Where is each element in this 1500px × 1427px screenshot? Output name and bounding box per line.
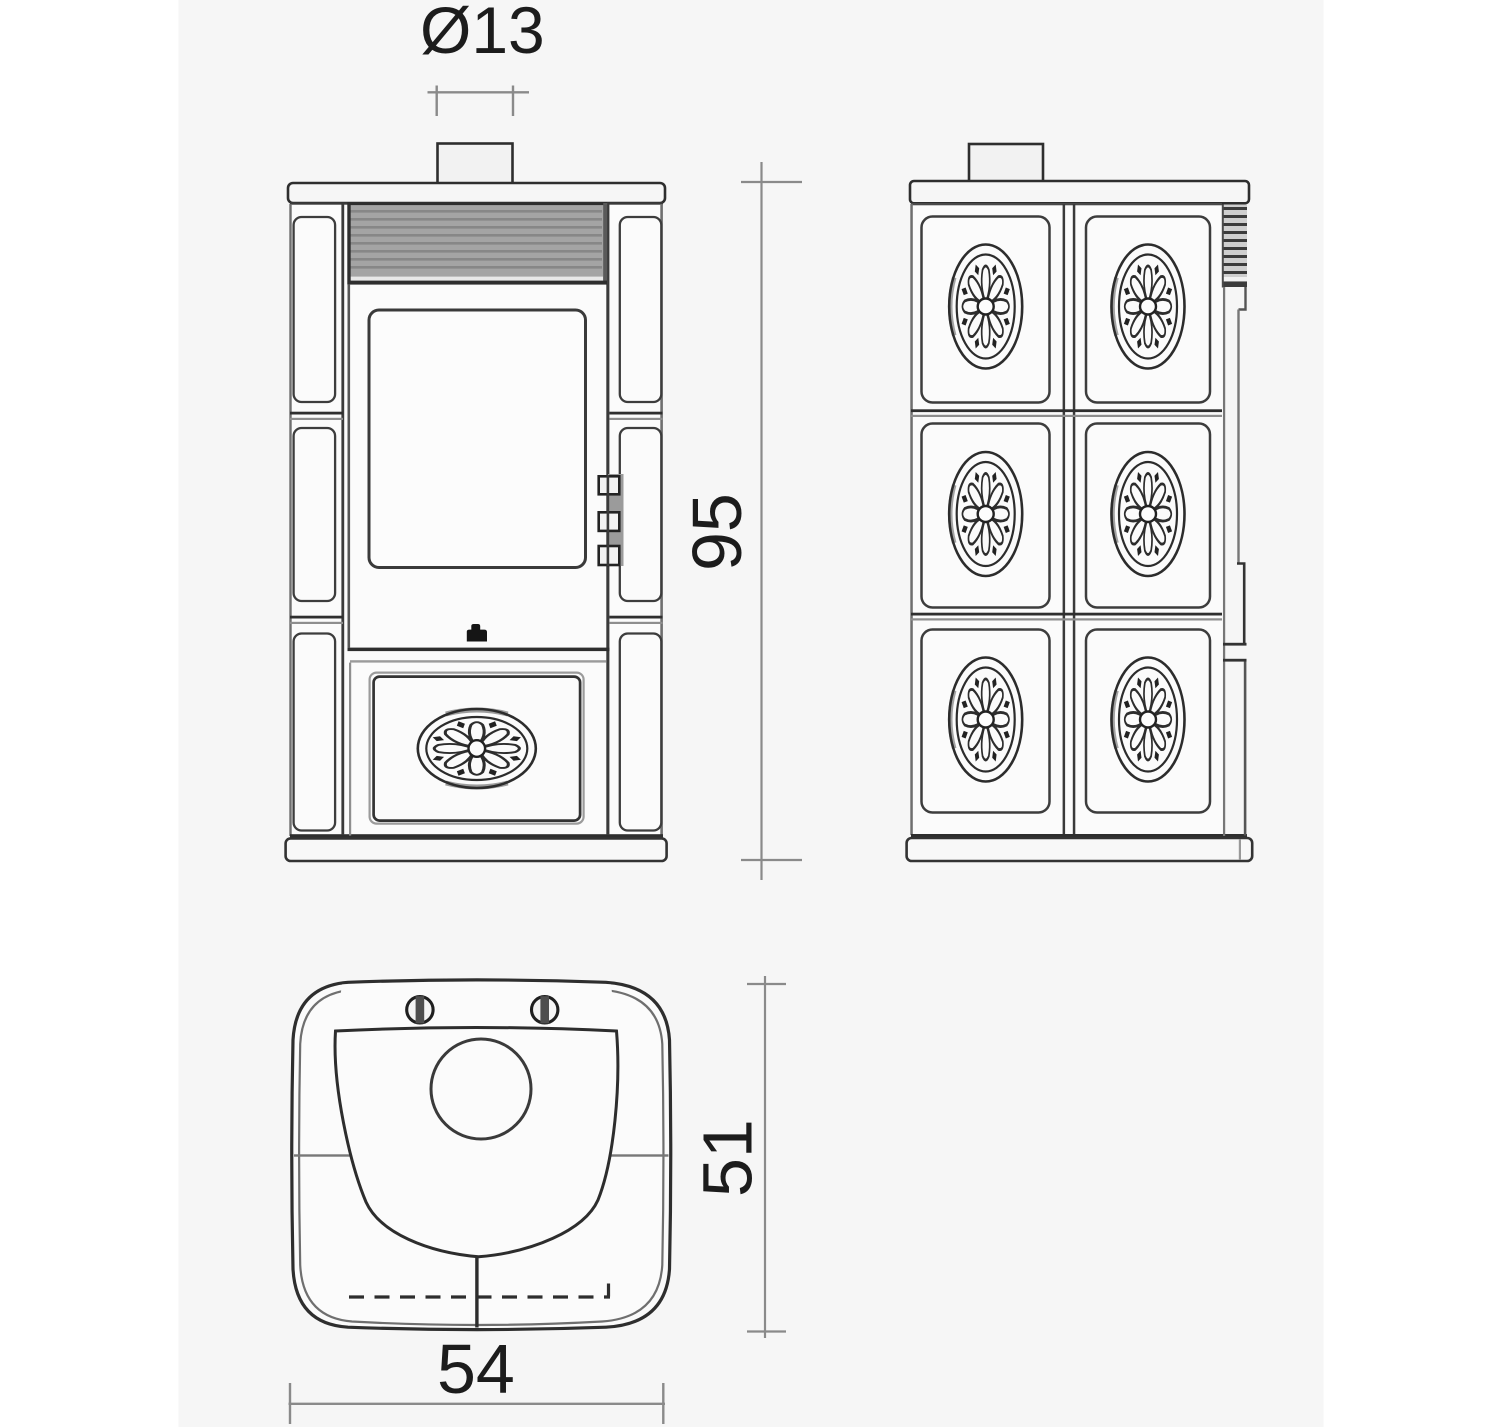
svg-text:95: 95 (678, 493, 756, 571)
svg-text:54: 54 (437, 1330, 515, 1408)
svg-text:Ø13: Ø13 (420, 0, 545, 67)
svg-text:51: 51 (689, 1119, 767, 1197)
